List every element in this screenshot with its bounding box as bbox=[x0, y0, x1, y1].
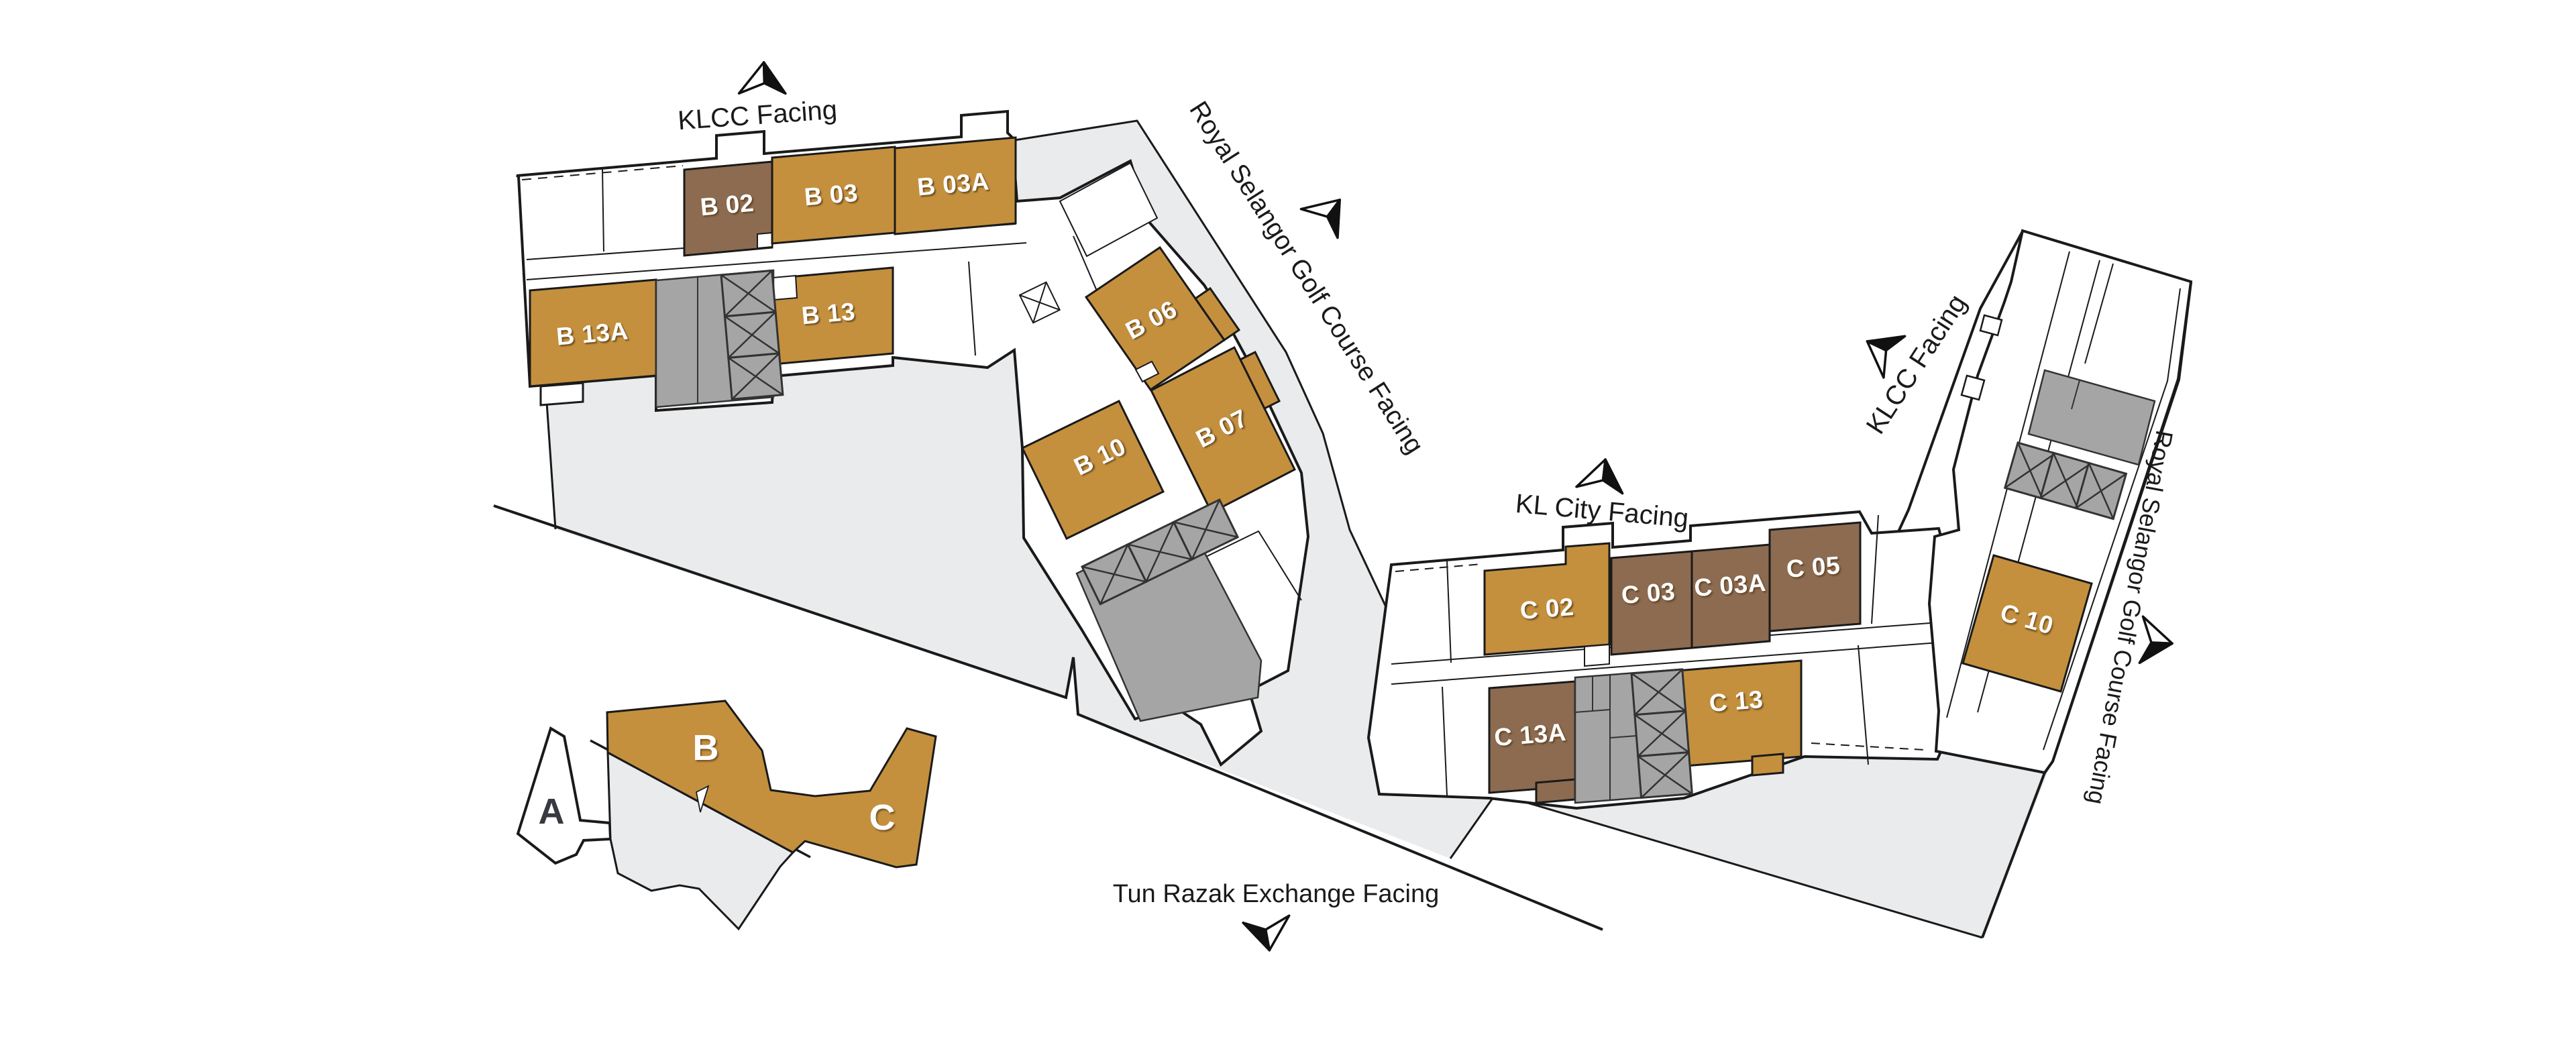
svg-text:B 03: B 03 bbox=[803, 179, 859, 211]
svg-text:C: C bbox=[869, 797, 896, 838]
svg-text:B 13: B 13 bbox=[800, 298, 856, 330]
svg-text:C 03A: C 03A bbox=[1693, 569, 1767, 602]
svg-text:C 05: C 05 bbox=[1785, 551, 1841, 583]
svg-text:Tun Razak Exchange Facing: Tun Razak Exchange Facing bbox=[1113, 880, 1440, 908]
svg-text:A: A bbox=[539, 791, 565, 832]
svg-text:B 02: B 02 bbox=[699, 189, 755, 221]
svg-text:C 13A: C 13A bbox=[1493, 718, 1567, 751]
svg-text:C 03: C 03 bbox=[1620, 577, 1676, 609]
svg-text:C 02: C 02 bbox=[1519, 593, 1574, 624]
svg-text:B: B bbox=[693, 728, 719, 768]
svg-text:KLCC Facing: KLCC Facing bbox=[677, 95, 838, 135]
svg-text:C 13: C 13 bbox=[1708, 685, 1764, 717]
